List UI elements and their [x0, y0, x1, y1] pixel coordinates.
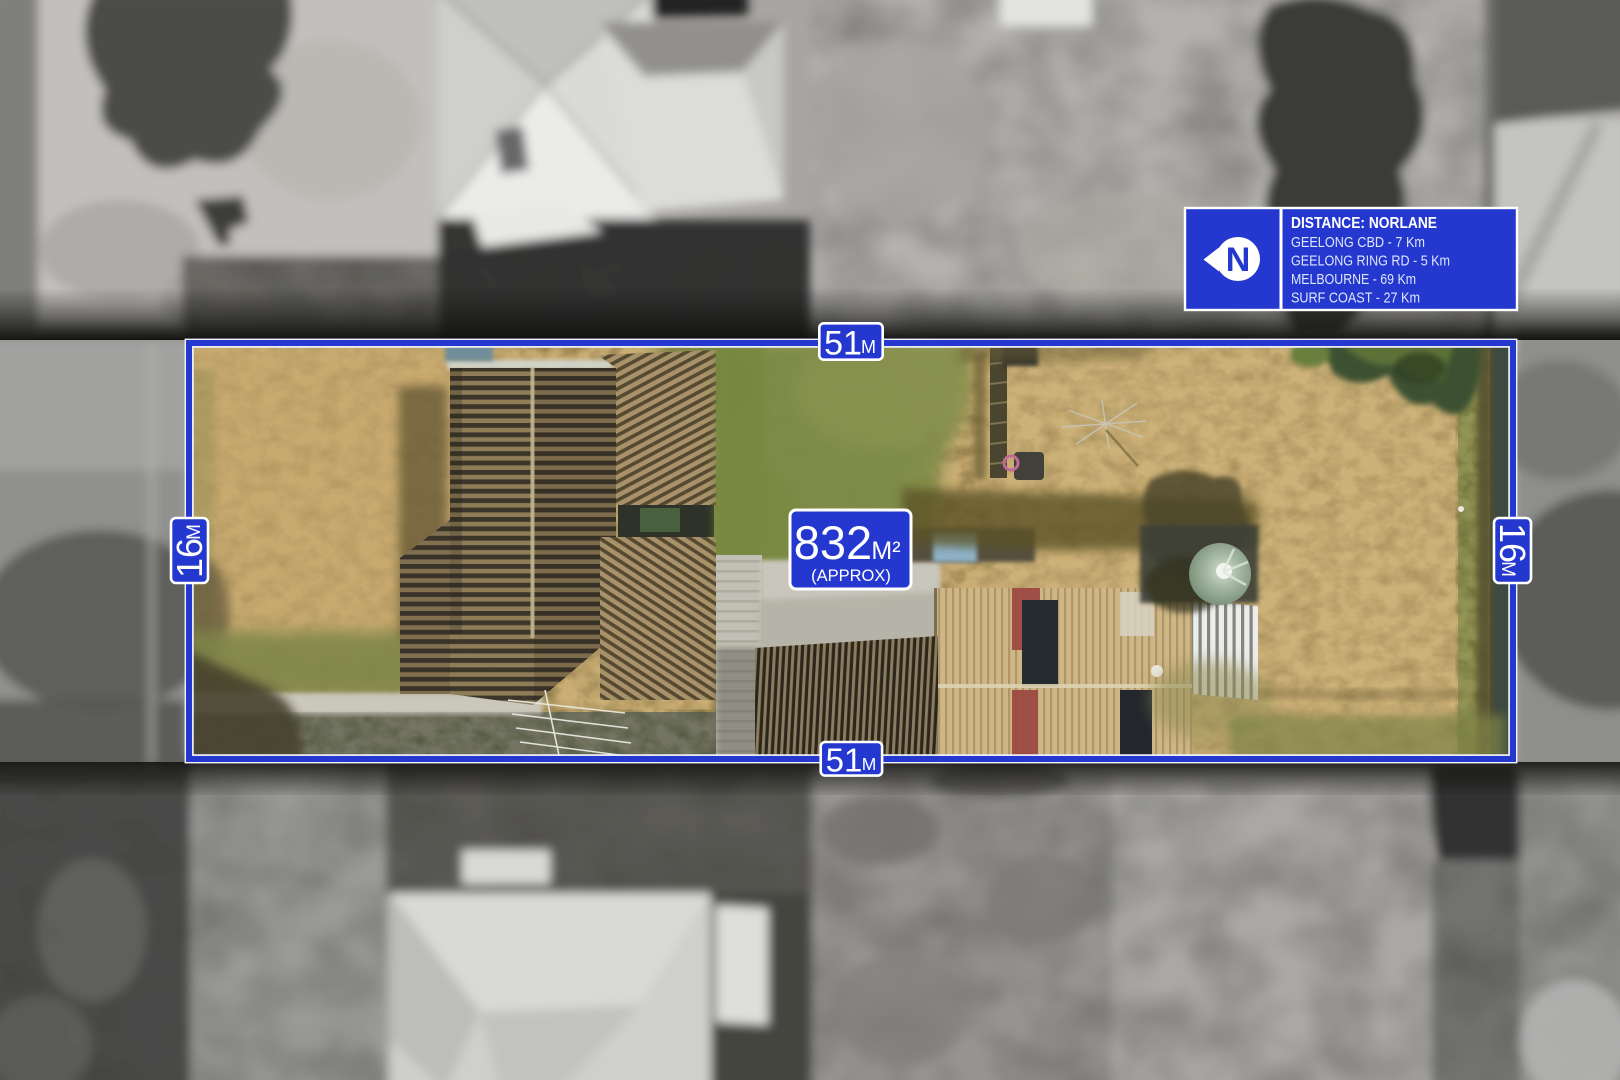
svg-text:DISTANCE: NORLANE: DISTANCE: NORLANE	[1291, 215, 1437, 232]
svg-text:16: 16	[1492, 523, 1533, 563]
svg-text:N: N	[1226, 241, 1251, 279]
svg-text:GEELONG CBD - 7 Km: GEELONG CBD - 7 Km	[1291, 234, 1425, 251]
svg-text:51: 51	[824, 325, 862, 363]
svg-text:16: 16	[169, 538, 210, 578]
svg-text:M: M	[1497, 561, 1518, 577]
svg-text:(APPROX): (APPROX)	[811, 567, 891, 585]
svg-text:M: M	[862, 754, 877, 774]
svg-text:832: 832	[794, 516, 872, 569]
svg-text:GEELONG RING RD - 5 Km: GEELONG RING RD - 5 Km	[1291, 253, 1450, 270]
svg-text:SURF COAST - 27 Km: SURF COAST - 27 Km	[1291, 290, 1420, 307]
svg-text:M: M	[861, 337, 876, 357]
svg-text:MELBOURNE - 69 Km: MELBOURNE - 69 Km	[1291, 271, 1416, 288]
svg-text:M²: M²	[871, 537, 900, 565]
svg-text:M: M	[184, 524, 205, 540]
svg-text:51: 51	[826, 742, 863, 779]
